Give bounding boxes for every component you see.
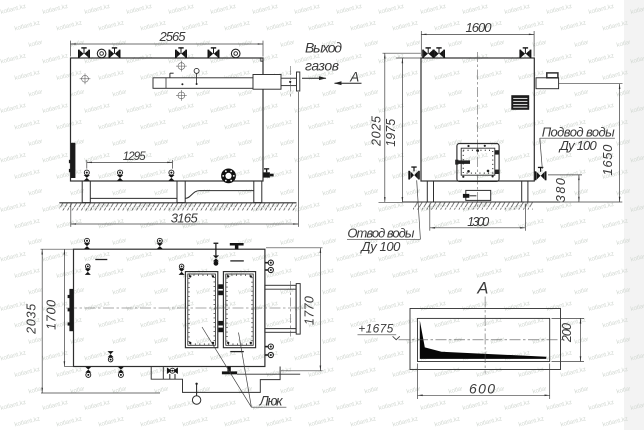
svg-text:А: А — [476, 280, 488, 298]
svg-text:200: 200 — [560, 323, 574, 343]
svg-text:Ду 100: Ду 100 — [558, 138, 598, 153]
svg-text:380: 380 — [554, 178, 568, 202]
svg-text:1295: 1295 — [123, 151, 147, 163]
svg-text:Выход: Выход — [305, 40, 342, 56]
svg-text:1700: 1700 — [44, 300, 58, 330]
svg-text:2035: 2035 — [25, 304, 39, 335]
svg-text:1975: 1975 — [384, 119, 398, 147]
svg-text:2565: 2565 — [159, 29, 187, 44]
svg-text:газов: газов — [305, 58, 339, 74]
svg-text:Люк: Люк — [259, 394, 284, 409]
svg-text:1600: 1600 — [466, 20, 493, 35]
svg-text:А: А — [349, 69, 359, 84]
svg-text:1770: 1770 — [303, 296, 317, 325]
svg-text:+1675: +1675 — [358, 322, 393, 336]
svg-text:Ду 100: Ду 100 — [359, 239, 401, 254]
svg-text:1650: 1650 — [600, 144, 615, 176]
svg-text:600: 600 — [469, 381, 495, 397]
svg-text:1300: 1300 — [467, 215, 489, 229]
svg-text:3165: 3165 — [171, 211, 199, 226]
svg-text:2025: 2025 — [369, 116, 383, 147]
